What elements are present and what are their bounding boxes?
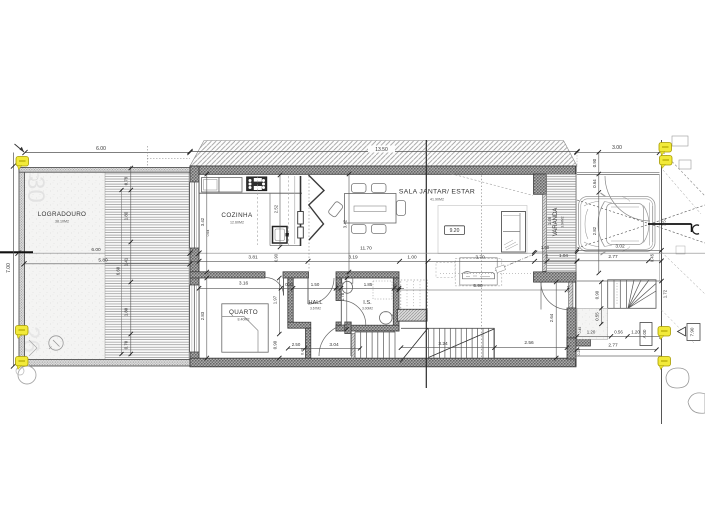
- svg-text:1.50: 1.50: [311, 282, 320, 287]
- svg-text:2.77: 2.77: [608, 343, 618, 349]
- svg-text:0.64: 0.64: [206, 230, 210, 237]
- svg-text:3.42: 3.42: [200, 217, 205, 226]
- svg-text:1.41: 1.41: [124, 257, 129, 266]
- svg-text:0.45: 0.45: [578, 327, 582, 334]
- svg-text:0.90: 0.90: [274, 253, 279, 262]
- svg-text:3.70: 3.70: [475, 255, 485, 261]
- svg-text:2.50: 2.50: [292, 342, 301, 347]
- svg-text:9.20: 9.20: [450, 228, 460, 234]
- svg-text:2.64: 2.64: [549, 313, 554, 322]
- svg-text:3.51: 3.51: [662, 217, 667, 226]
- svg-text:1.00: 1.00: [407, 255, 417, 261]
- svg-text:3.02: 3.02: [615, 244, 625, 250]
- svg-text:0.46: 0.46: [545, 254, 549, 261]
- svg-text:6.00: 6.00: [91, 247, 101, 253]
- svg-text:A 00: A 00: [642, 329, 647, 338]
- svg-text:30: 30: [22, 176, 49, 203]
- svg-text:3.04: 3.04: [329, 342, 339, 348]
- svg-text:1.20: 1.20: [587, 330, 596, 335]
- svg-text:0.45: 0.45: [650, 253, 655, 262]
- svg-text:5.80: 5.80: [98, 257, 108, 263]
- svg-text:0.90: 0.90: [595, 290, 600, 299]
- svg-text:0.64: 0.64: [592, 179, 597, 188]
- svg-text:3.94M2: 3.94M2: [561, 216, 565, 227]
- svg-text:2.82: 2.82: [592, 226, 597, 235]
- svg-text:2.52: 2.52: [273, 204, 278, 213]
- svg-text:7.00: 7.00: [6, 263, 12, 273]
- svg-text:1.50: 1.50: [541, 245, 550, 250]
- svg-text:1.20: 1.20: [631, 330, 640, 335]
- svg-text:6.00: 6.00: [96, 146, 106, 152]
- svg-text:0.70: 0.70: [124, 340, 129, 349]
- svg-text:SALA JANTAR/ ESTAR: SALA JANTAR/ ESTAR: [399, 189, 475, 196]
- svg-text:13.50: 13.50: [375, 147, 388, 153]
- svg-text:5.90: 5.90: [473, 283, 483, 289]
- svg-text:12.60M2: 12.60M2: [230, 221, 244, 225]
- svg-text:0.90: 0.90: [592, 158, 597, 167]
- svg-text:VARANDA: VARANDA: [553, 208, 559, 237]
- svg-text:7.90: 7.90: [690, 327, 695, 336]
- svg-text:COZINHA: COZINHA: [221, 212, 253, 219]
- svg-text:1.78: 1.78: [340, 292, 345, 301]
- svg-text:LOGRADOURO: LOGRADOURO: [38, 211, 86, 218]
- svg-text:0.15: 0.15: [336, 284, 340, 291]
- svg-text:2.77: 2.77: [608, 254, 618, 260]
- svg-text:2.83: 2.83: [200, 311, 205, 320]
- svg-text:1.80: 1.80: [124, 211, 129, 220]
- svg-text:0.46: 0.46: [567, 286, 571, 293]
- svg-text:1.72: 1.72: [663, 289, 668, 298]
- svg-text:0.55: 0.55: [595, 312, 600, 321]
- svg-text:3.67M2: 3.67M2: [310, 307, 321, 311]
- svg-text:QUARTO: QUARTO: [229, 309, 258, 316]
- svg-text:1.80: 1.80: [124, 307, 129, 316]
- svg-text:0.25: 0.25: [577, 349, 581, 356]
- svg-text:3.24: 3.24: [438, 341, 448, 347]
- svg-text:38.10M2: 38.10M2: [55, 220, 69, 224]
- svg-text:11.70: 11.70: [360, 245, 372, 251]
- svg-text:0.10: 0.10: [394, 284, 398, 291]
- svg-text:0.45: 0.45: [285, 282, 294, 287]
- svg-text:8.40M2: 8.40M2: [238, 318, 250, 322]
- svg-text:3.81: 3.81: [248, 255, 258, 261]
- svg-text:1.85: 1.85: [364, 282, 373, 287]
- svg-text:0.78: 0.78: [124, 176, 129, 185]
- svg-text:3.00M2: 3.00M2: [362, 307, 373, 311]
- svg-text:1.46: 1.46: [547, 216, 552, 225]
- svg-text:3.16: 3.16: [239, 280, 249, 286]
- svg-text:1.04: 1.04: [559, 253, 568, 258]
- svg-text:3.00: 3.00: [612, 145, 622, 151]
- svg-text:HALL: HALL: [309, 300, 323, 306]
- svg-text:0.90: 0.90: [273, 340, 278, 349]
- svg-text:1.97: 1.97: [273, 295, 278, 304]
- svg-text:3.42: 3.42: [342, 219, 347, 228]
- svg-text:I.S.: I.S.: [363, 300, 372, 306]
- svg-text:3.19: 3.19: [348, 255, 358, 261]
- svg-text:0.56: 0.56: [614, 330, 623, 335]
- svg-text:41.90M2: 41.90M2: [430, 198, 444, 202]
- svg-text:6.60: 6.60: [116, 266, 121, 275]
- svg-text:2.56: 2.56: [524, 340, 534, 346]
- svg-text:0.46: 0.46: [301, 348, 305, 355]
